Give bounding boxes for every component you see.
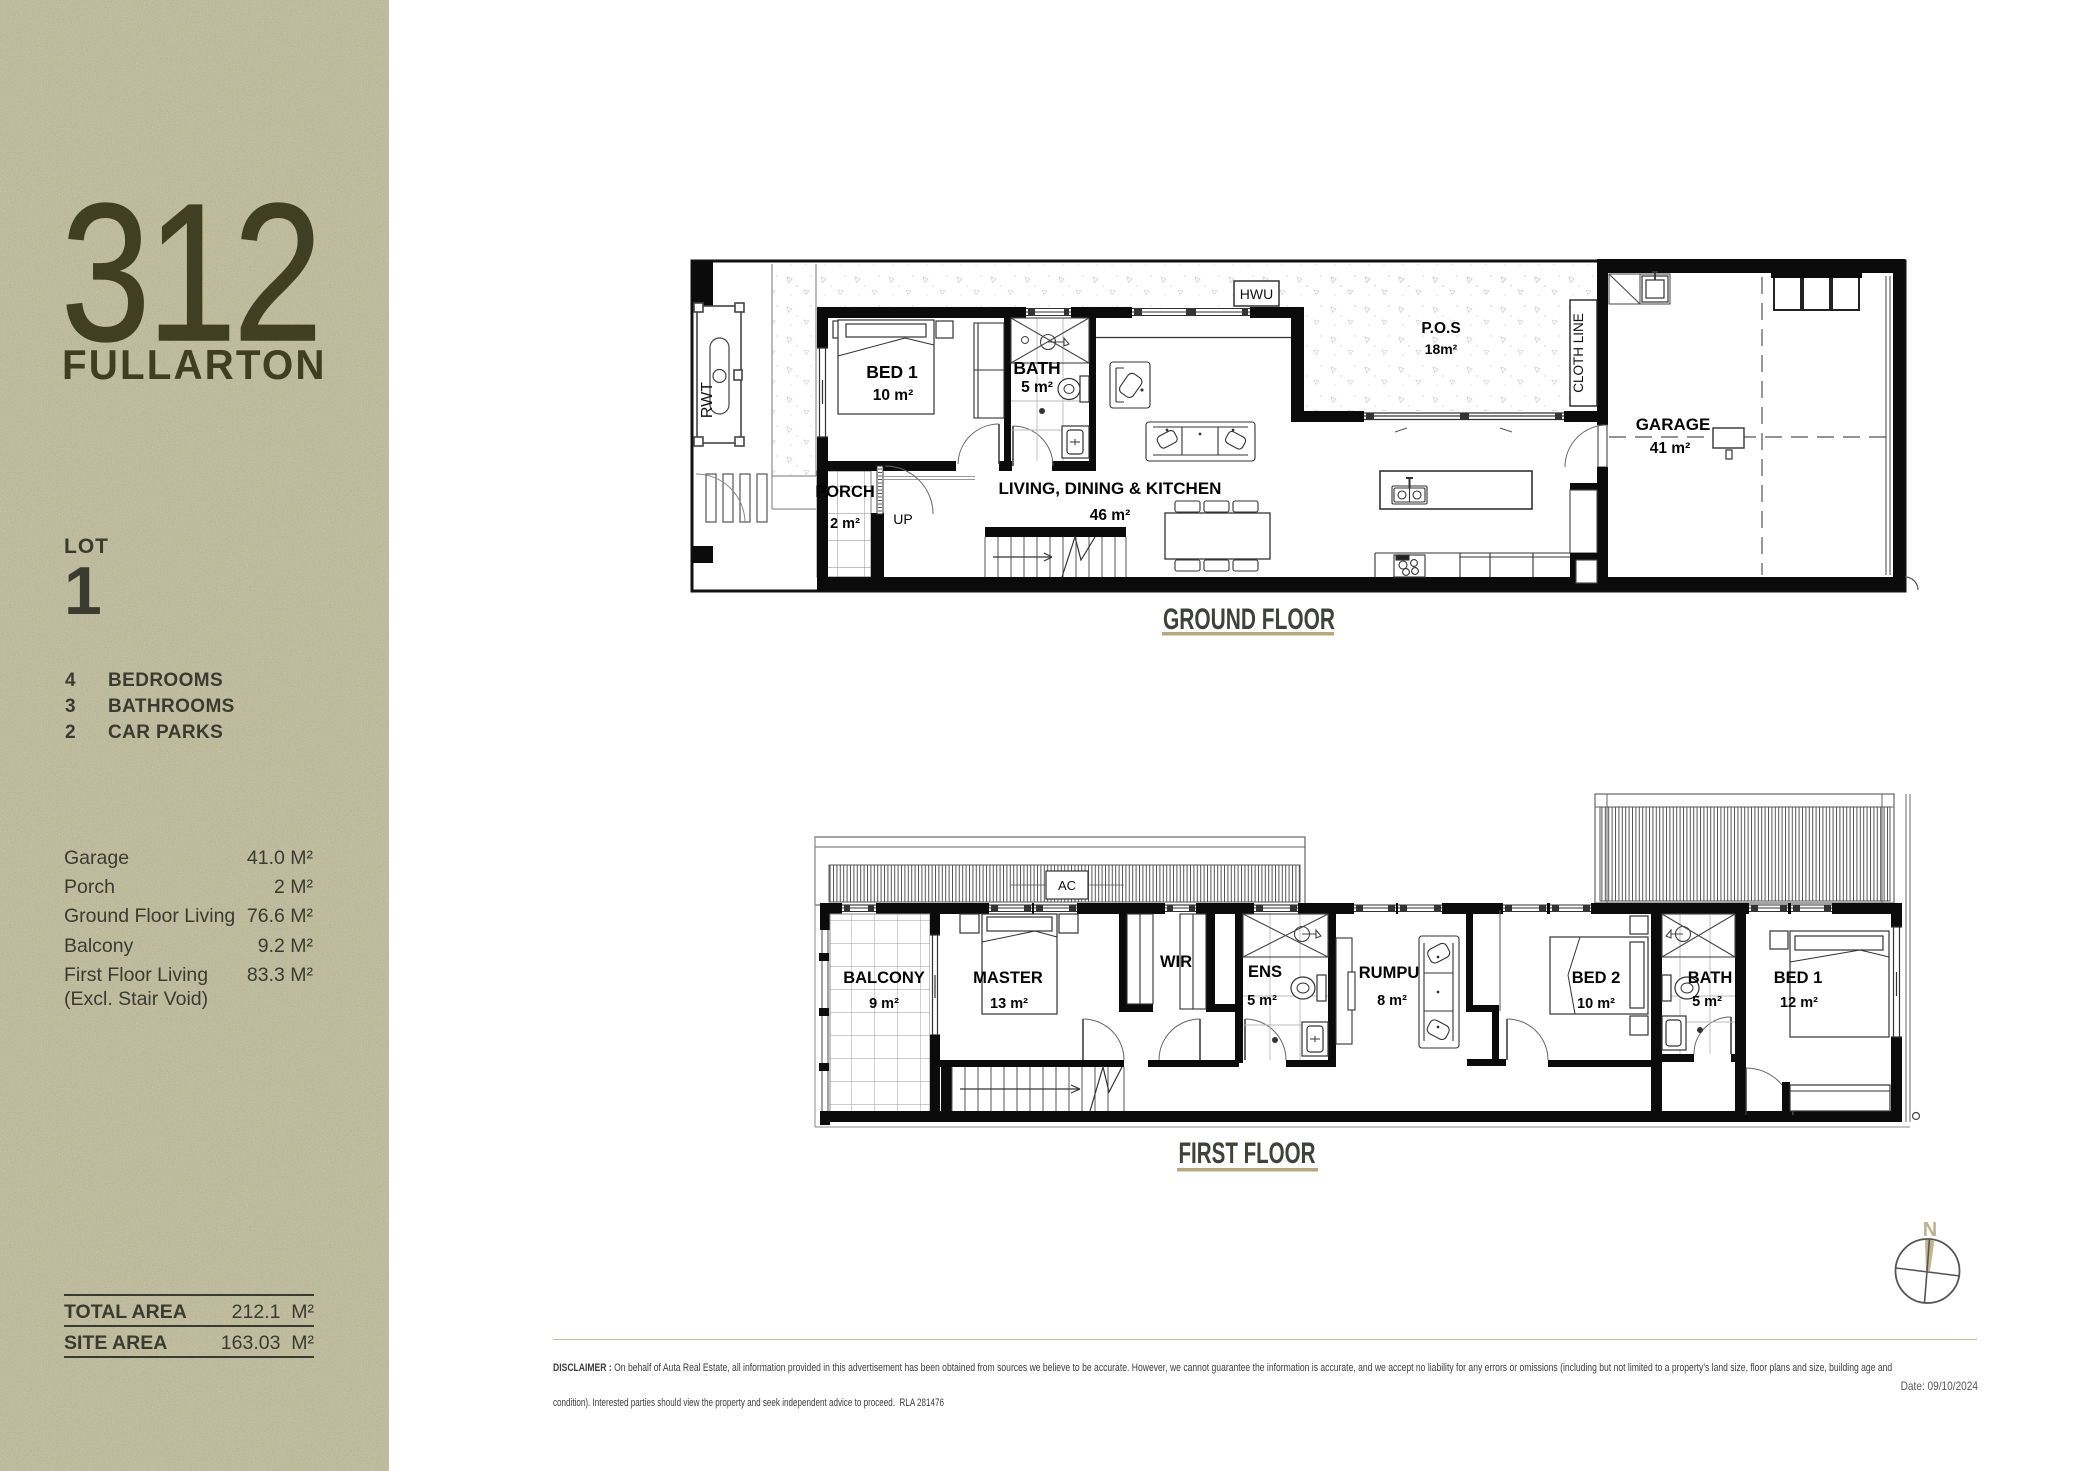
svg-text:5 m²: 5 m² [1247,993,1277,1009]
svg-text:RUMPU: RUMPU [1359,964,1420,982]
svg-text:5 m²: 5 m² [1692,994,1722,1010]
svg-text:BED 1: BED 1 [1774,969,1823,987]
svg-text:9 m²: 9 m² [869,996,899,1012]
svg-text:13 m²: 13 m² [990,996,1028,1012]
svg-text:WIR: WIR [1160,953,1192,971]
svg-text:10 m²: 10 m² [1577,996,1615,1012]
svg-text:MASTER: MASTER [973,969,1043,987]
svg-text:BATH: BATH [1688,969,1733,987]
svg-text:12 m²: 12 m² [1780,995,1818,1011]
svg-text:FIRST FLOOR: FIRST FLOOR [1179,1137,1316,1170]
svg-text:8 m²: 8 m² [1377,993,1407,1009]
svg-text:BED 2: BED 2 [1572,969,1621,987]
svg-text:AC: AC [1058,878,1076,893]
svg-text:ENS: ENS [1248,963,1282,981]
svg-text:BALCONY: BALCONY [843,969,925,987]
svg-text:N: N [1923,1219,1937,1241]
